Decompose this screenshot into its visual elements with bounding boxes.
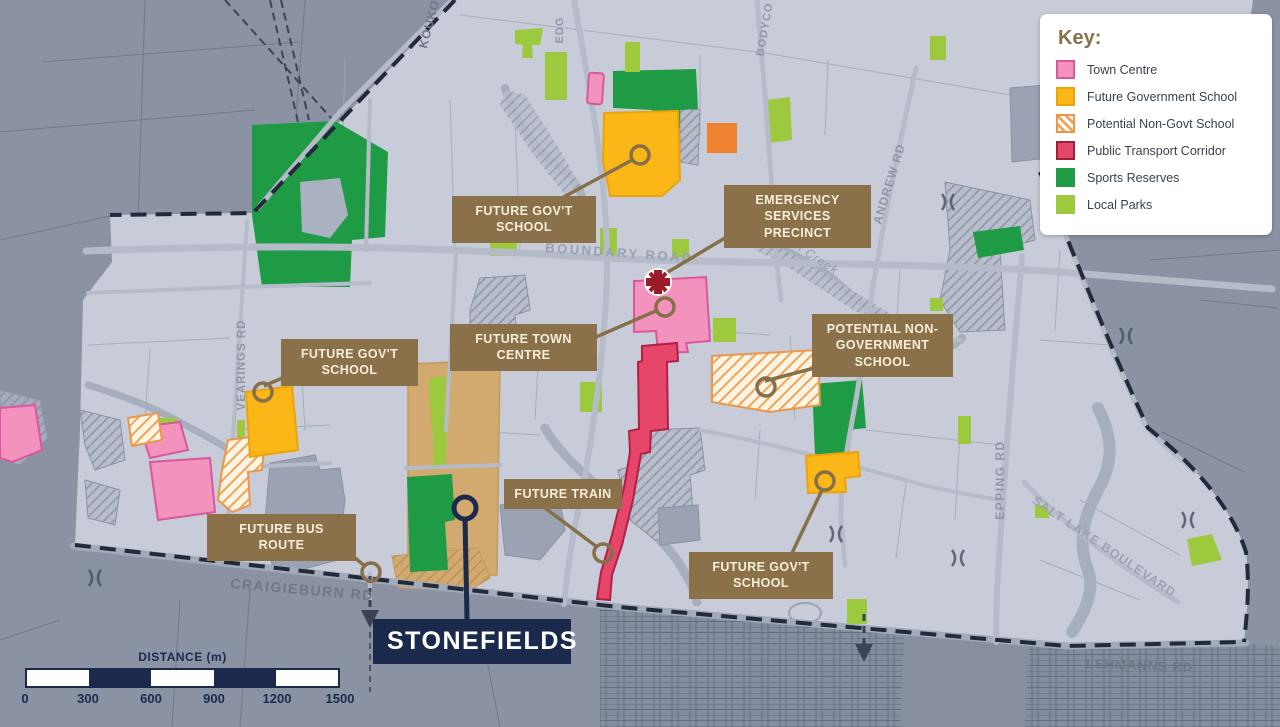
scale-tick: 600 bbox=[140, 691, 162, 706]
legend-item-public-transport-corridor: Public Transport Corridor bbox=[1056, 141, 1256, 160]
sports-reserves-swatch bbox=[1056, 168, 1075, 187]
scale-segment bbox=[89, 670, 151, 686]
callout-future-govt-school-west: FUTURE GOV'T SCHOOL bbox=[281, 339, 418, 386]
non-govt-school-swatch bbox=[1056, 114, 1075, 133]
legend-item-label: Potential Non-Govt School bbox=[1087, 117, 1234, 131]
scale-tick: 1200 bbox=[263, 691, 292, 706]
legend-item-label: Public Transport Corridor bbox=[1087, 144, 1226, 158]
callout-future-bus-route: FUTURE BUS ROUTE bbox=[207, 514, 356, 561]
callout-future-govt-school-southeast: FUTURE GOV'T SCHOOL bbox=[689, 552, 833, 599]
scale-segment bbox=[276, 670, 338, 686]
callout-future-town-centre: FUTURE TOWN CENTRE bbox=[450, 324, 597, 371]
scale-bar: DISTANCE (m) 0 300 600 900 1200 1500 bbox=[25, 650, 340, 707]
scale-bar-segments bbox=[25, 668, 340, 688]
legend-item-potential-non-govt-school: Potential Non-Govt School bbox=[1056, 114, 1256, 133]
legend-item-label: Town Centre bbox=[1087, 63, 1157, 77]
edg-rd-label: EDG bbox=[554, 17, 566, 44]
callout-future-govt-school-top: FUTURE GOV'T SCHOOL bbox=[452, 196, 596, 243]
govt-school-swatch bbox=[1056, 87, 1075, 106]
scale-bar-ticks: 0 300 600 900 1200 1500 bbox=[25, 691, 340, 707]
vearings-rd-label: VEARINGS RD bbox=[236, 320, 248, 411]
legend-item-label: Local Parks bbox=[1087, 198, 1152, 212]
local-parks-swatch bbox=[1056, 195, 1075, 214]
scale-segment bbox=[27, 670, 89, 686]
legend-item-label: Future Government School bbox=[1087, 90, 1237, 104]
scale-segment bbox=[214, 670, 276, 686]
legend-item-future-government-school: Future Government School bbox=[1056, 87, 1256, 106]
legend-item-label: Sports Reserves bbox=[1087, 171, 1179, 185]
scale-tick: 0 bbox=[21, 691, 28, 706]
scale-tick: 300 bbox=[77, 691, 99, 706]
scale-segment bbox=[151, 670, 213, 686]
legend-item-sports-reserves: Sports Reserves bbox=[1056, 168, 1256, 187]
stonefields-planning-map: BOUNDARY ROAD CRAIGIEBURN RD LEHMANNS RD… bbox=[0, 0, 1280, 727]
scale-bar-title: DISTANCE (m) bbox=[25, 650, 340, 664]
orange-square bbox=[707, 123, 737, 153]
callout-future-train: FUTURE TRAIN bbox=[504, 479, 622, 509]
callout-potential-non-govt-school: POTENTIAL NON-GOVERNMENT SCHOOL bbox=[812, 314, 953, 377]
callout-emergency-services: EMERGENCY SERVICES PRECINCT bbox=[724, 185, 871, 248]
town-centre-swatch bbox=[1056, 60, 1075, 79]
transport-corridor-swatch bbox=[1056, 141, 1075, 160]
legend-title: Key: bbox=[1058, 27, 1256, 50]
scale-tick: 900 bbox=[203, 691, 225, 706]
legend-item-town-centre: Town Centre bbox=[1056, 60, 1256, 79]
legend-item-local-parks: Local Parks bbox=[1056, 195, 1256, 214]
emergency-services-icon bbox=[644, 268, 672, 296]
scale-tick: 1500 bbox=[326, 691, 355, 706]
stonefields-title: STONEFIELDS bbox=[373, 619, 571, 664]
epping-rd-label: EPPING RD bbox=[993, 440, 1007, 520]
map-legend: Key: Town Centre Future Government Schoo… bbox=[1040, 14, 1272, 235]
